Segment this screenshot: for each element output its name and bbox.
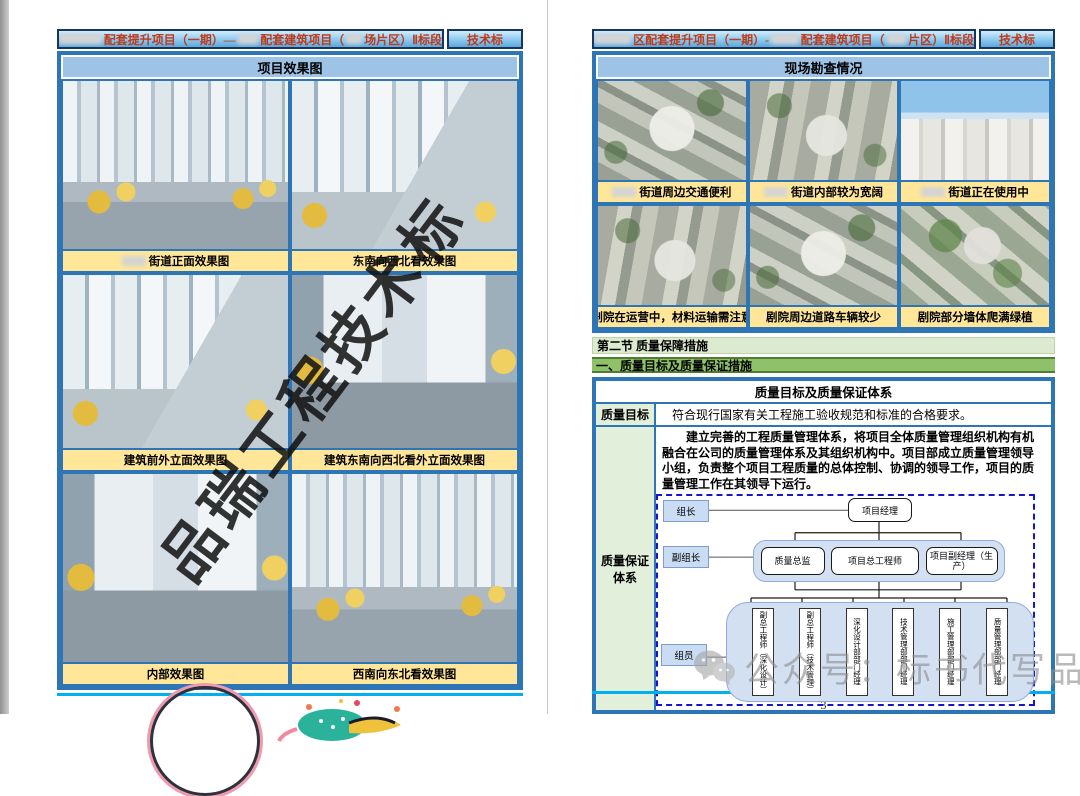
image-caption: 街道周边交通便利 — [598, 180, 746, 202]
image-cell: 剧院部分墙体爬满绿植 — [899, 204, 1051, 329]
header-text-segment: 配套提升项目（一期）— — [104, 31, 236, 48]
org-mid-container: 质量总监 项目总工程师 项目副经理（生产） — [753, 540, 1005, 582]
quality-goal-text: 符合现行国家有关工程施工验收规范和标准的合格要求。 — [656, 404, 1051, 425]
caption-text: 建筑东南向西北看外立面效果图 — [324, 452, 485, 468]
image-caption: 剧院周边道路车辆较少 — [750, 305, 898, 327]
caption-text: 西南向东北看效果图 — [353, 666, 457, 682]
footer-watermark: 公众号：标书代写品瑞 — [692, 642, 1080, 693]
image-cell: 街道正面效果图 — [61, 79, 290, 273]
building-rendering-image — [292, 474, 517, 662]
doc-title-right: 区配套提升项目（一期）-配套建筑项目（片区）Ⅱ标段 — [592, 29, 976, 49]
street-photo-image — [901, 81, 1049, 180]
image-cell: 西南向东北看效果图 — [290, 472, 519, 686]
org-role-deputy-leader: 副组长 — [663, 546, 709, 568]
caption-text: 东南向西北看效果图 — [353, 253, 457, 269]
caption-text: 街道正在使用中 — [948, 184, 1029, 200]
caption-text: 建筑前外立面效果图 — [124, 452, 228, 468]
image-caption: 建筑前外立面效果图 — [63, 448, 288, 470]
doc-header-row-right: 区配套提升项目（一期）-配套建筑项目（片区）Ⅱ标段 技术标 — [592, 29, 1055, 49]
image-caption: 街道内部较为宽阔 — [750, 180, 898, 202]
header-text-segment: 场片区）Ⅱ标段 — [364, 31, 442, 48]
viewer-left-edge — [0, 0, 9, 714]
quality-system-label: 质量保证体系 — [596, 427, 656, 710]
page-gap-divider — [547, 0, 548, 714]
aerial-photo-image — [901, 206, 1049, 305]
sub-heading: 一、质量目标及质量保证措施 — [592, 357, 1055, 373]
aerial-photo-image — [598, 206, 746, 305]
org-role-leader: 组长 — [663, 500, 709, 522]
aerial-photo-image — [598, 81, 746, 180]
redacted-text — [764, 187, 788, 197]
building-rendering-image — [63, 81, 288, 249]
header-text-segment: 配套建筑项目（ — [260, 31, 344, 48]
image-cell: 街道周边交通便利 — [596, 79, 748, 204]
page-left: 配套提升项目（一期）—配套建筑项目（场片区）Ⅱ标段 技术标 项目效果图 街道正面… — [57, 29, 523, 690]
image-caption: 建筑东南向西北看外立面效果图 — [292, 448, 517, 470]
section-title-survey: 现场勘查情况 — [596, 55, 1051, 79]
quality-table-title: 质量目标及质量保证体系 — [596, 381, 1051, 404]
building-rendering-image — [292, 81, 517, 249]
caption-text: 剧院周边道路车辆较少 — [766, 309, 881, 325]
footer-watermark-text: 公众号：标书代写品瑞 — [744, 642, 1080, 693]
renderings-table: 项目效果图 街道正面效果图东南向西北看效果图建筑前外立面效果图建筑东南向西北看外… — [57, 51, 523, 690]
org-node-quality-director: 质量总监 — [761, 547, 825, 575]
building-rendering-image — [63, 474, 288, 662]
redacted-text — [238, 34, 259, 44]
header-text-segment: 区配套提升项目（一期）- — [633, 31, 769, 48]
quality-goal-row: 质量目标 符合现行国家有关工程施工验收规范和标准的合格要求。 — [596, 404, 1051, 427]
building-rendering-image — [292, 275, 517, 448]
doc-header-row-left: 配套提升项目（一期）—配套建筑项目（场片区）Ⅱ标段 技术标 — [57, 29, 523, 49]
org-node-chief-engineer: 项目总工程师 — [831, 547, 919, 575]
header-text-segment: 配套建筑项目（ — [801, 31, 885, 48]
org-node-deputy-manager: 项目副经理（生产） — [926, 547, 998, 575]
caption-text: 街道周边交通便利 — [639, 184, 731, 200]
image-caption: 剧院在运营中，材料运输需注意 — [598, 305, 746, 327]
doc-tag-left: 技术标 — [447, 29, 523, 49]
redacted-text — [887, 34, 906, 44]
caption-text: 剧院部分墙体爬满绿植 — [918, 309, 1033, 325]
caption-text: 内部效果图 — [147, 666, 205, 682]
redacted-text — [59, 34, 102, 44]
image-caption: 内部效果图 — [63, 662, 288, 684]
wechat-icon — [692, 648, 736, 688]
page-right: 区配套提升项目（一期）-配套建筑项目（片区）Ⅱ标段 技术标 现场勘查情况 街道周… — [592, 29, 1055, 714]
image-caption: 街道正在使用中 — [901, 180, 1049, 202]
aerial-photo-image — [750, 206, 898, 305]
redacted-text — [122, 256, 146, 266]
redacted-text — [346, 34, 362, 44]
image-cell: 建筑前外立面效果图 — [61, 273, 290, 472]
aerial-photo-image — [750, 81, 898, 180]
section2-heading: 第二节 质量保障措施 — [592, 337, 1055, 354]
org-node-project-manager: 项目经理 — [848, 498, 912, 522]
redacted-text — [612, 187, 636, 197]
caption-text: 街道正面效果图 — [149, 253, 230, 269]
section-title-renderings: 项目效果图 — [61, 55, 519, 79]
image-caption: 街道正面效果图 — [63, 249, 288, 271]
image-cell: 剧院在运营中，材料运输需注意 — [596, 204, 748, 329]
redacted-text — [594, 34, 631, 44]
redacted-text — [921, 187, 945, 197]
quality-system-paragraph: 建立完善的工程质量管理体系，将项目全体质量管理组织机构有机融合在公司的质量管理体… — [656, 427, 1051, 494]
survey-table: 现场勘查情况 街道周边交通便利街道内部较为宽阔街道正在使用中剧院在运营中，材料运… — [592, 51, 1055, 333]
image-caption: 剧院部分墙体爬满绿植 — [901, 305, 1049, 327]
doc-tag-right: 技术标 — [979, 29, 1055, 49]
image-cell: 内部效果图 — [61, 472, 290, 686]
quality-goal-label: 质量目标 — [596, 404, 656, 425]
image-cell: 建筑东南向西北看外立面效果图 — [290, 273, 519, 472]
renderings-grid: 街道正面效果图东南向西北看效果图建筑前外立面效果图建筑东南向西北看外立面效果图内… — [61, 79, 519, 686]
doc-title-left: 配套提升项目（一期）—配套建筑项目（场片区）Ⅱ标段 — [57, 29, 444, 49]
seal-ring-decoration — [150, 686, 260, 796]
image-caption: 东南向西北看效果图 — [292, 249, 517, 271]
image-cell: 街道正在使用中 — [899, 79, 1051, 204]
header-text-segment: 片区）Ⅱ标段 — [908, 31, 974, 48]
image-cell: 街道内部较为宽阔 — [748, 79, 900, 204]
caption-text: 剧院在运营中，材料运输需注意 — [598, 309, 746, 325]
redacted-text — [771, 34, 798, 44]
caption-text: 街道内部较为宽阔 — [791, 184, 883, 200]
dragon-clipart — [257, 695, 407, 743]
building-rendering-image — [63, 275, 288, 448]
image-cell: 东南向西北看效果图 — [290, 79, 519, 273]
image-caption: 西南向东北看效果图 — [292, 662, 517, 684]
survey-grid: 街道周边交通便利街道内部较为宽阔街道正在使用中剧院在运营中，材料运输需注意剧院周… — [596, 79, 1051, 329]
image-cell: 剧院周边道路车辆较少 — [748, 204, 900, 329]
